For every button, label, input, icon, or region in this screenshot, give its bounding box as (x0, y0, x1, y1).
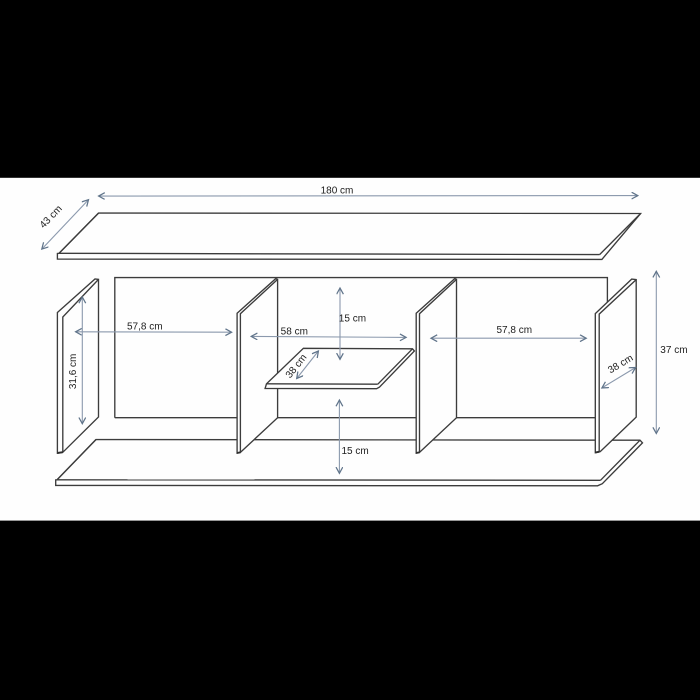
svg-text:37 cm: 37 cm (660, 345, 687, 356)
svg-text:15 cm: 15 cm (339, 314, 366, 325)
svg-text:180 cm: 180 cm (321, 186, 354, 197)
svg-text:15 cm: 15 cm (342, 446, 369, 457)
svg-text:58 cm: 58 cm (281, 327, 308, 338)
svg-text:31,6 cm: 31,6 cm (68, 354, 79, 390)
svg-text:57,8 cm: 57,8 cm (127, 321, 163, 332)
svg-text:57,8 cm: 57,8 cm (497, 325, 533, 336)
